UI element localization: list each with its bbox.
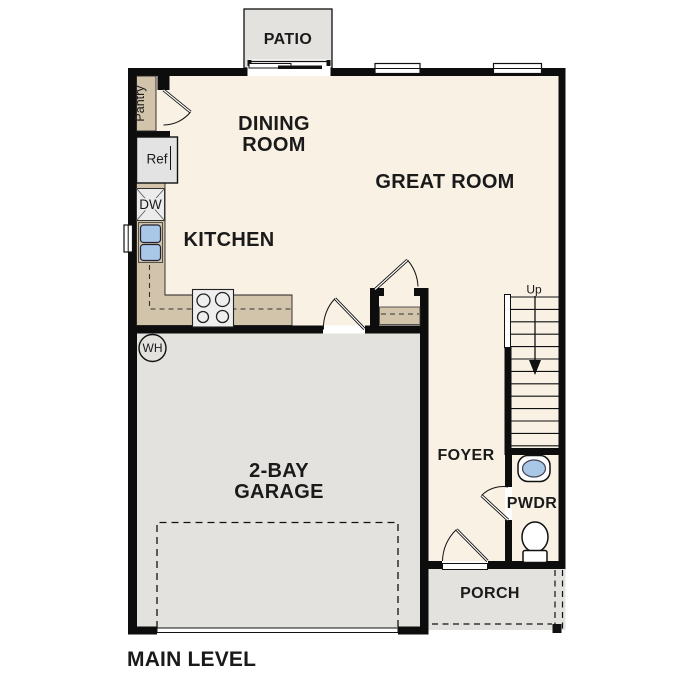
slider-panel-moving: [278, 66, 322, 70]
wall-front-left: [428, 561, 442, 569]
porch-label: PORCH: [460, 585, 520, 602]
patio-label: PATIO: [264, 31, 313, 48]
door-threshold: [443, 564, 488, 570]
patio-sliding-door: [248, 60, 331, 77]
slider-jamb-right: [327, 60, 331, 66]
wall-stairs-bottom: [505, 448, 566, 455]
dining-room-label-line1: DINING: [238, 113, 310, 135]
wall-closet-stub-right: [414, 288, 429, 296]
kitchen-label: KITCHEN: [184, 229, 275, 251]
dining-room-label-line2: ROOM: [242, 134, 305, 156]
wall-left: [128, 68, 137, 635]
pantry-label: Pantry: [133, 85, 147, 122]
great-room-label: GREAT ROOM: [375, 171, 514, 193]
stair-rail: [505, 295, 511, 348]
wall-garage-bottom-right-stub: [398, 627, 429, 635]
garage-door: [157, 628, 398, 633]
stove: [193, 290, 234, 328]
toilet: [522, 522, 548, 563]
toilet-tank: [523, 551, 547, 563]
wall-pantry-bottom: [128, 131, 170, 137]
wall-garage-bottom-left-stub: [128, 627, 157, 635]
powder-room-label: PWDR: [507, 495, 558, 512]
garage-label-line2: GARAGE: [234, 481, 324, 503]
closet-shelf: [380, 307, 421, 325]
door-opening: [323, 326, 365, 334]
vanity-basin: [523, 460, 546, 477]
stairs-up-label: Up: [526, 283, 542, 297]
wall-powder-left-upper: [505, 448, 512, 487]
garage-label-line1: 2-BAY: [249, 460, 309, 482]
refrigerator-label: Ref: [146, 152, 167, 167]
sink-basin-bottom: [141, 245, 161, 261]
porch-corner-post: [553, 624, 562, 633]
plan-title: MAIN LEVEL: [127, 648, 256, 671]
sink-basin-top: [141, 225, 161, 243]
wall-stairs-left: [505, 346, 512, 448]
toilet-bowl: [522, 522, 548, 552]
water-heater-label: WH: [143, 341, 163, 355]
kitchen-sink: [139, 223, 163, 263]
wall-right: [559, 68, 566, 569]
wall-pantry-stub: [158, 76, 170, 90]
coat-closet: [380, 307, 421, 325]
floor-plan-canvas: PATIO DINING ROOM GREAT ROOM KITCHEN 2-B…: [0, 0, 687, 687]
dishwasher-label: DW: [139, 197, 162, 212]
foyer-label: FOYER: [437, 447, 494, 464]
wall-garage-right: [420, 288, 429, 635]
floor-plan: PATIO DINING ROOM GREAT ROOM KITCHEN 2-B…: [0, 0, 687, 687]
